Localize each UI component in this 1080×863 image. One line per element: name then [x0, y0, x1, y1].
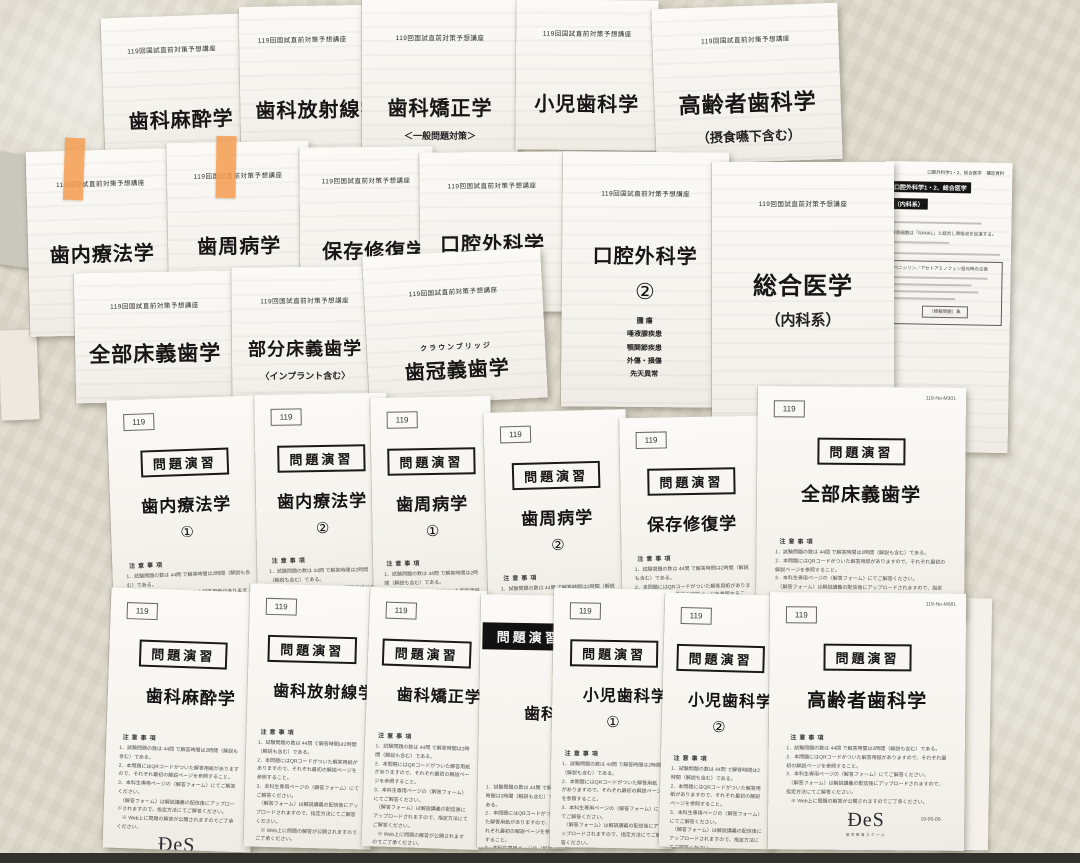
- practice-book-masui: 119 問題演習 歯科麻酔学 注意事項 1．試験問題の数は 44問 で解答時間は…: [103, 587, 260, 852]
- booklet-title: 全部床義歯学: [89, 337, 222, 369]
- year-badge: 119: [500, 426, 531, 444]
- booklet-title: 歯科麻酔学: [145, 682, 236, 710]
- year-badge: 119: [681, 607, 712, 625]
- year-badge: 119: [126, 602, 157, 620]
- notes-text: 1．試験問題の数は 44問 で解答時間は2時間（解説も含む）である。 2．本問題…: [560, 760, 662, 849]
- orange-tape-tab: [63, 138, 85, 201]
- lecture-cover-shoni: 119回国試直前対策予想講座 小児歯科学: [515, 0, 658, 151]
- lecture-cover-korei: 119回国試直前対策予想講座 高齢者歯科学 （摂食嚥下含む）: [651, 3, 842, 165]
- booklet-subtitle: ＜一般問題対策＞: [404, 129, 476, 142]
- lecture-cover-hoshasen: 119回国試直前対策予想講座 歯科放射線学: [239, 5, 368, 155]
- course-header: 119回国試直前対策予想講座: [701, 32, 790, 45]
- practice-label: 問題演習: [277, 444, 365, 473]
- practice-label: 問題演習: [676, 644, 765, 673]
- supplement-text: （模擬問題）集: [922, 306, 968, 318]
- notes-heading: 注意事項: [565, 748, 601, 758]
- blurred-text-line: [893, 283, 971, 286]
- practice-book-kyosei: 119 問題演習 歯科矯正学 注意事項 1．試験問題の数は 44問 で解答時間は…: [362, 587, 488, 850]
- practice-book-korei: 119-No-M081 119 問題演習 高齢者歯科学 注意事項 1．試験問題の…: [768, 592, 966, 851]
- practice-label: 問題演習: [387, 447, 475, 476]
- booklet-title: 歯周病学: [396, 489, 468, 515]
- booklet-title: 歯周病学: [197, 229, 281, 259]
- practice-label: 問題演習: [823, 644, 911, 672]
- practice-book-shishu1: 119 問題演習 歯周病学 ① 注意事項 1．試験問題の数は 44問 で解答時間…: [370, 396, 493, 593]
- notes-heading: 注意事項: [503, 572, 539, 582]
- supplement-text: 破骨細胞は「RANKL」と結合し骨吸収を促進する。: [891, 229, 996, 238]
- des-logo-text: ÐeS: [847, 809, 885, 831]
- practice-label: 問題演習: [817, 438, 905, 466]
- booklet-title: 歯内療法学: [141, 489, 232, 517]
- booklet-title: 口腔外科学: [593, 240, 698, 270]
- blurred-text-line: [891, 241, 949, 244]
- booklet-title: 小児歯科学: [583, 681, 668, 706]
- year-badge: 119: [636, 431, 667, 449]
- course-header: 119回国試直前対策予想講座: [127, 42, 216, 55]
- practice-label: 問題演習: [140, 447, 229, 477]
- notes-heading: 注意事項: [260, 727, 296, 737]
- booklet-title: 部分床義歯学: [248, 335, 362, 362]
- notes-text: 1．試験問題の数は 44問 で解答時間は2時間（解説も含む）である。 2．本問題…: [116, 744, 240, 836]
- course-header: 119回国試直前対策予想講座: [448, 180, 537, 191]
- des-logo-text: ÐeS: [400, 848, 438, 850]
- notes-heading: 注意事項: [122, 732, 158, 742]
- booklet-title: 歯科矯正学: [396, 681, 482, 708]
- supplement-header: 口腔外科学1・2、総合医学 補足資料: [927, 170, 1004, 177]
- notes-heading: 注意事項: [673, 753, 709, 763]
- notes-heading: 注意事項: [378, 730, 414, 740]
- course-header: 119回国試直前対策予想講座: [408, 284, 497, 299]
- course-header: 119回国試直前対策予想講座: [543, 28, 632, 39]
- booklet-code: 119-No-M081: [926, 602, 956, 608]
- course-header: 119回国試直前対策予想講座: [601, 188, 690, 199]
- booklet-title: 小児歯科学: [534, 88, 639, 118]
- year-badge: 119: [266, 598, 297, 616]
- practice-book-shoni2: 119 問題演習 小児歯科学 ② 注意事項 1．試験問題の数は 44問 で解答時…: [659, 593, 780, 850]
- photo-of-exam-booklets: 119回国試直前対策予想講座 歯科麻酔学 119回国試直前対策予想講座 歯科放射…: [0, 0, 1080, 863]
- practice-label: 問題演習: [382, 639, 471, 669]
- under-paper-left: [0, 329, 40, 420]
- blurred-text-line: [893, 297, 955, 300]
- practice-book-shoni1: 119 問題演習 小児歯科学 ① 注意事項 1．試験問題の数は 44問 で解答時…: [550, 588, 677, 849]
- table-edge: [0, 853, 1080, 863]
- supplement-text: ペニシリン／アセトアミノフェン投与時の注意: [894, 264, 988, 273]
- lecture-cover-bubun: 119回国試直前対策予想講座 部分床義歯学 〈インプラント含む〉: [231, 266, 378, 407]
- practice-book-shishu2: 119 問題演習 歯周病学 ② 注意事項 1．試験問題の数は 44問 で解答時間…: [483, 409, 630, 611]
- des-logo-text: ÐeS: [158, 833, 196, 853]
- lecture-cover-zenbu: 119回国試直前対策予想講座 全部床義歯学: [74, 271, 236, 404]
- topic-list: 腫 瘍 唾液腺疾患 顎関節疾患 外傷・損傷 先天異常: [627, 315, 663, 382]
- supplement-box: ペニシリン／アセトアミノフェン投与時の注意 （模擬問題）集: [888, 260, 1003, 325]
- course-header: 119回国試直前対策予想講座: [322, 175, 411, 186]
- year-badge: 119: [774, 400, 805, 417]
- year-badge: 119: [385, 602, 416, 620]
- year-badge: 119: [271, 408, 302, 426]
- blurred-text-line: [893, 276, 987, 280]
- practice-label: 問題演習: [268, 635, 357, 664]
- notes-heading: 注意事項: [386, 558, 422, 568]
- des-logo: ÐeS歯学教育スクール: [846, 809, 886, 838]
- supplement-title-bar: 口腔外科学1・2、総合医学: [890, 181, 971, 193]
- notes-heading: 注意事項: [272, 555, 308, 565]
- notes-heading: 注意事項: [637, 553, 673, 563]
- lecture-cover-geka2: 119回国試直前対策予想講座 口腔外科学 ② 腫 瘍 唾液腺疾患 顎関節疾患 外…: [561, 151, 729, 407]
- blurred-text-line: [893, 290, 978, 293]
- orange-tape-tab: [215, 136, 236, 198]
- year-badge: 119: [387, 411, 418, 429]
- notes-heading: 注意事項: [780, 536, 816, 545]
- booklet-title: 保存修復学: [647, 509, 737, 536]
- booklet-title: 歯冠義歯学: [404, 351, 510, 385]
- course-header: 119回国試直前対策予想講座: [260, 295, 349, 306]
- notes-heading: 注意事項: [129, 560, 165, 570]
- des-logo: ÐeS歯学教育スクール: [156, 833, 197, 853]
- booklet-subtitle: （摂食嚥下含む）: [696, 124, 801, 147]
- year-badge: 119: [570, 602, 601, 620]
- course-header: 119回国試直前対策予想講座: [759, 198, 848, 208]
- volume-number: ②: [316, 519, 330, 537]
- booklet-title: 歯科麻酔学: [128, 102, 234, 135]
- print-code: 19-00-00-: [920, 816, 942, 822]
- supplement-title-bar2: （内科系）: [890, 198, 928, 210]
- booklet-title: 高齢者歯科学: [807, 685, 927, 713]
- volume-number: ①: [426, 522, 440, 540]
- des-logo-text: ÐeS: [288, 844, 326, 849]
- booklet-title: 高齢者歯科学: [678, 84, 817, 121]
- notes-text: 1．試験問題の数は 44問 で解答時間は2時間（解説も含む）である。 2．本問題…: [372, 742, 472, 850]
- booklet-title: 歯科放射線学: [255, 93, 367, 124]
- practice-book-hozon: 119 問題演習 保存修復学 注意事項 1．試験問題の数は 44問 で解答時間は…: [619, 416, 764, 616]
- booklet-title: 歯内療法学: [49, 237, 155, 269]
- booklet-subtitle: （内科系）: [765, 309, 840, 330]
- booklet-title: 歯科放射線学: [273, 677, 376, 704]
- practice-book-hoshasen: 119 問題演習 歯科放射線学 注意事項 1．試験問題の数は 44問 で解答時間…: [244, 583, 378, 849]
- blurred-text-line: [891, 252, 1000, 256]
- blurred-text-line: [891, 221, 981, 225]
- notes-text: 1．試験問題の数は 44問 で解答時間は2時間（解説も含む）である。 2．本問題…: [786, 744, 947, 807]
- lecture-cover-kyosei: 119回国試直前対策予想講座 歯科矯正学 ＜一般問題対策＞: [362, 0, 518, 158]
- notes-heading: 注意事項: [790, 732, 826, 741]
- practice-label: 問題演習: [512, 461, 601, 490]
- booklet-title: 全部床義歯学: [801, 479, 921, 507]
- des-logo-tagline: 歯学教育スクール: [846, 833, 886, 838]
- practice-label: 問題演習: [570, 639, 658, 668]
- des-logo: ÐeS歯学教育スクール: [399, 848, 440, 850]
- course-header: 119回国試直前対策予想講座: [396, 32, 485, 42]
- volume-number: ①: [180, 523, 194, 541]
- volume-number: ①: [606, 713, 620, 731]
- notes-text: 1．試験問題の数は 44問 で解答時間は2時間（解説も含む）である。 2．本問題…: [483, 783, 558, 848]
- practice-book-zenbu: 119-No-M301 119 問題演習 全部床義歯学 注意事項 1．試験問題の…: [756, 386, 966, 620]
- booklet-title: 歯内療法学: [277, 486, 367, 513]
- des-logo: ÐeS歯学教育スクール: [286, 844, 327, 849]
- practice-label: 問題演習: [139, 640, 228, 670]
- booklet-title: 総合医学: [753, 266, 853, 301]
- lecture-cover-shikan: 119回国試直前対策予想講座 クラウンブリッジ 歯冠義歯学: [362, 247, 548, 406]
- year-badge: 119: [786, 606, 817, 623]
- booklet-code: 119-No-M301: [926, 396, 956, 402]
- booklet-title: 小児歯科学: [688, 686, 774, 712]
- booklet-title: 歯周病学: [521, 503, 594, 530]
- course-header: 119回国試直前対策予想講座: [258, 33, 347, 45]
- volume-number: ②: [712, 718, 726, 736]
- notes-text: 1．試験問題の数は 44問 で解答時間は2時間（解説も含む）である。 2．本問題…: [255, 739, 362, 847]
- booklet-subtitle: 〈インプラント含む〉: [260, 369, 350, 383]
- practice-label: 問題演習: [647, 467, 735, 496]
- notes-text: 1．試験問題の数は 44問 で解答時間は2時間（解説も含む）である。 2．本問題…: [668, 765, 764, 850]
- course-header: 119回国試直前対策予想講座: [110, 299, 199, 311]
- booklet-title: 歯科矯正学: [388, 92, 493, 121]
- volume-number: ②: [635, 279, 655, 305]
- course-header: 119回国試直前対策予想講座: [193, 169, 282, 181]
- volume-number: ②: [551, 536, 565, 554]
- practice-book-shinai2: 119 問題演習 歯内療法学 ② 注意事項 1．試験問題の数は 44問 で解答時…: [254, 393, 389, 595]
- practice-book-shinai1: 119 問題演習 歯内療法学 ① 注意事項 1．試験問題の数は 44問 で解答時…: [107, 395, 266, 600]
- year-badge: 119: [123, 413, 154, 431]
